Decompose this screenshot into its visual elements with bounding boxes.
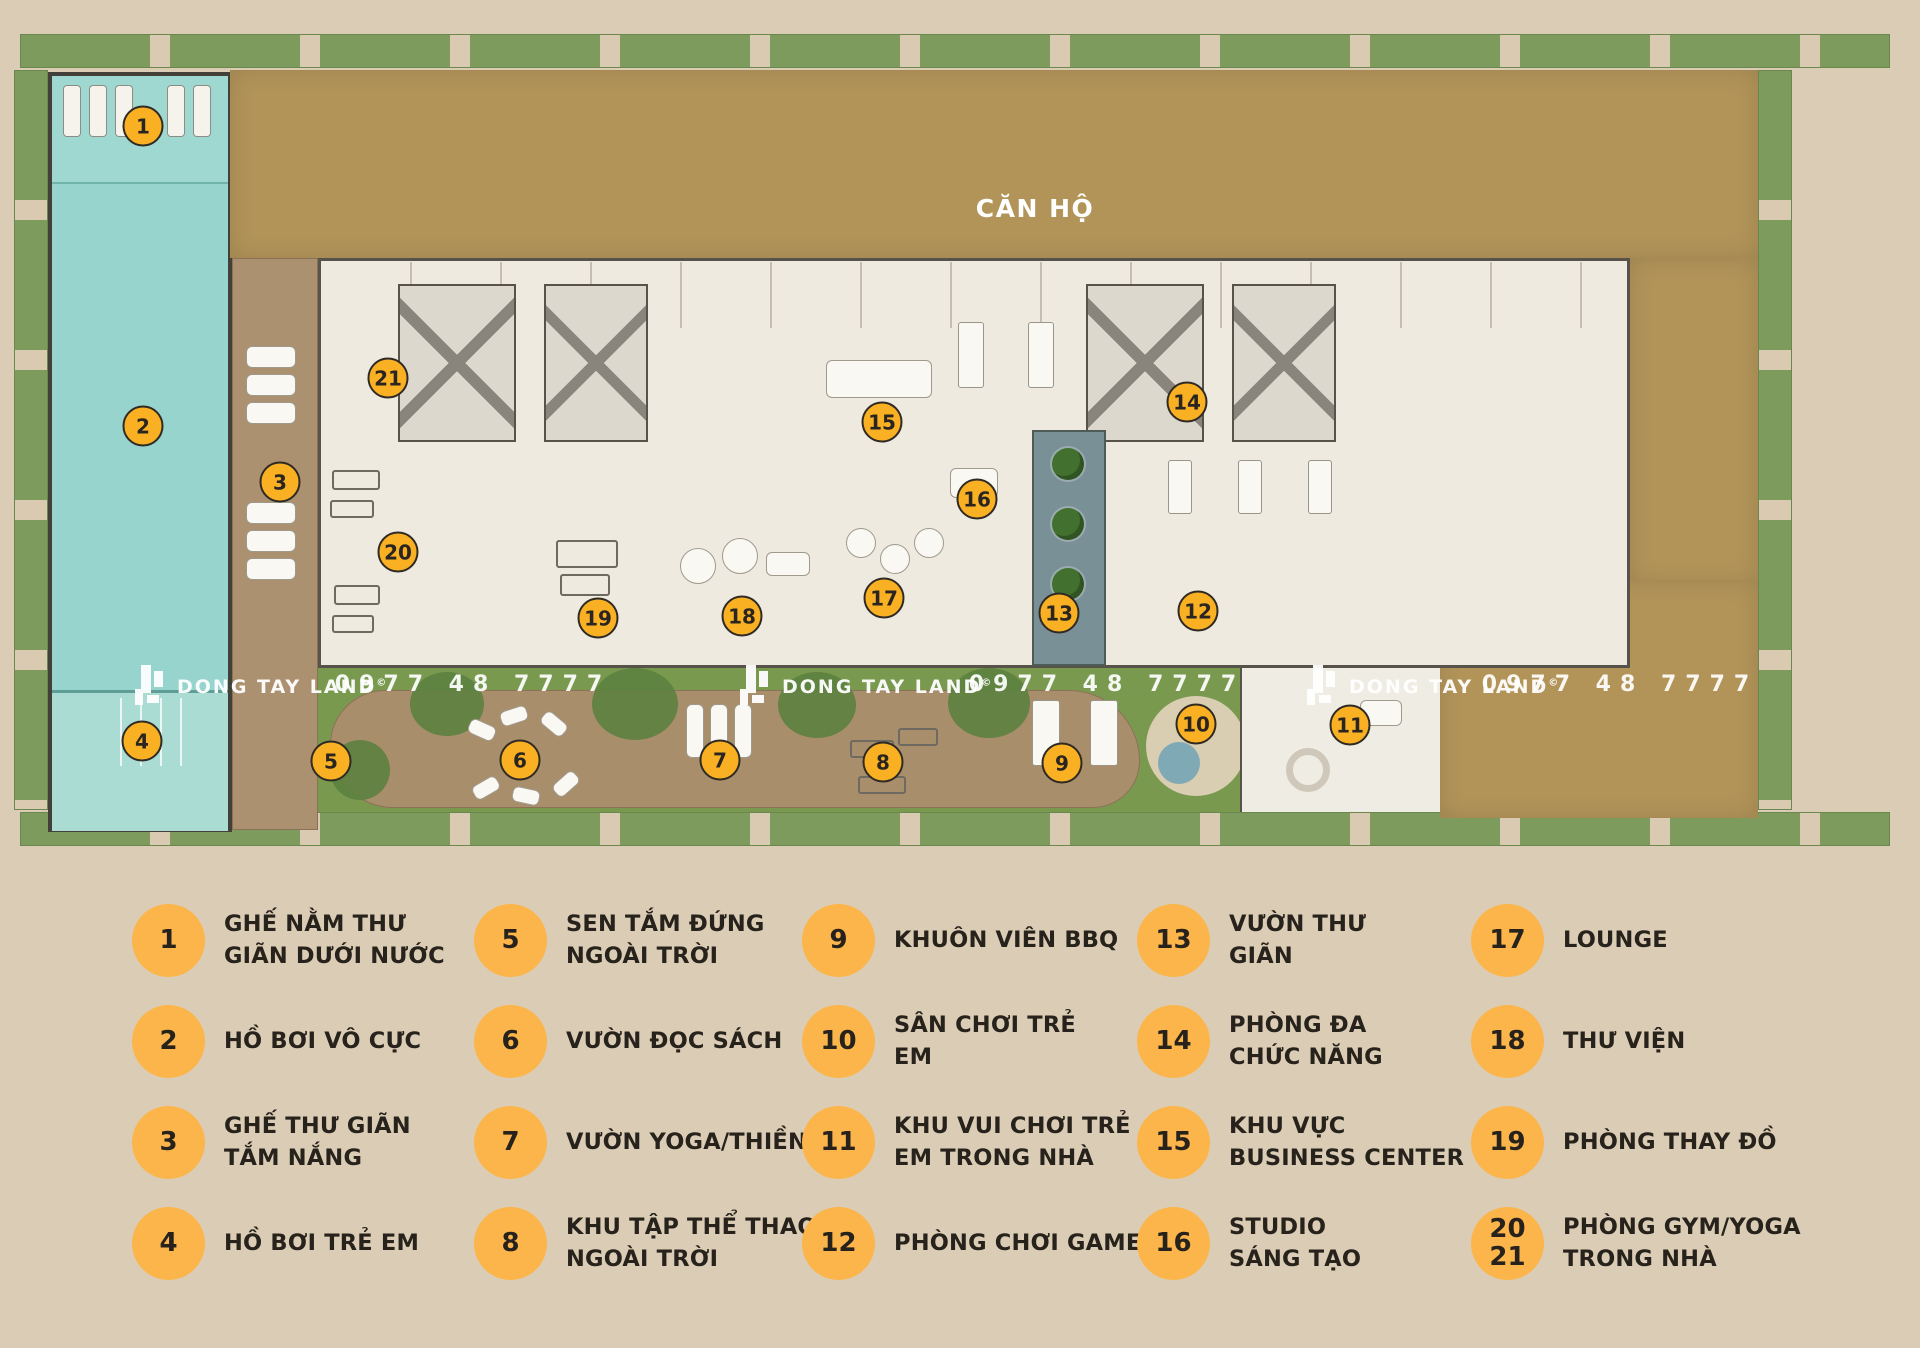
plan-marker: 10 [1176,704,1217,745]
long-table [958,322,984,388]
legend-item-label: GHẾ THƯ GIÃN TẮM NẮNG [224,1111,411,1173]
tree [1052,448,1084,480]
stair-core [544,284,648,442]
apartment-block [230,70,1758,258]
locker-bench [560,574,610,596]
long-table [1168,460,1192,514]
plan-marker: 1 [123,106,164,147]
legend-item-label: KHU TẬP THỂ THAO NGOÀI TRỜI [566,1212,817,1274]
play-slide [1286,748,1330,792]
stair-core [1232,284,1336,442]
legend-item-number: 18 [1471,1005,1544,1078]
legend-item-number: 12 [802,1207,875,1280]
watermark-logo: DONG TAY LAND© [738,663,993,711]
unit-partitions [322,262,1626,328]
legend-item-number: 1 [132,904,205,977]
legend-item-number: 13 [1137,904,1210,977]
legend-item-number: 7 [474,1106,547,1179]
stair-core [398,284,516,442]
legend-item-label: KHU VỰC BUSINESS CENTER [1229,1111,1464,1173]
legend-item-label: LOUNGE [1563,925,1668,956]
legend-item-number: 17 [1471,904,1544,977]
plan-marker: 20 [378,532,419,573]
legend-item: 4HỒ BƠI TRẺ EM [132,1193,532,1294]
pool-lane-line [120,698,122,766]
watermark-phone: 0977 48 7777 [1482,672,1758,697]
library-shelf [766,552,810,576]
plan-marker: 5 [311,741,352,782]
plan-marker: 15 [862,402,903,443]
legend-item-number: 6 [474,1005,547,1078]
legend-item-number: 9 [802,904,875,977]
plan-marker: 13 [1039,593,1080,634]
legend-item-label: PHÒNG GYM/YOGA TRONG NHÀ [1563,1212,1801,1274]
legend-item-label: KHUÔN VIÊN BBQ [894,925,1118,956]
plan-marker: 12 [1178,591,1219,632]
sun-lounger [246,530,296,552]
legend-item-label: HỒ BƠI VÔ CỰC [224,1026,421,1057]
sun-lounger [246,558,296,580]
legend-item-number: 10 [802,1005,875,1078]
pool [48,72,232,832]
sun-lounger [246,502,296,524]
apartment-block-label: CĂN HỘ [900,194,1170,223]
legend-item-label: PHÒNG ĐA CHỨC NĂNG [1229,1010,1383,1072]
gym-equipment [330,500,374,518]
legend-item-label: PHÒNG CHƠI GAME [894,1228,1141,1259]
plan-marker: 18 [722,596,763,637]
legend-column: 1GHẾ NẰM THƯ GIÃN DƯỚI NƯỚC2HỒ BƠI VÔ CỰ… [132,890,532,1294]
playground-pool [1158,742,1200,784]
plan-marker: 7 [700,740,741,781]
legend-item: 3GHẾ THƯ GIÃN TẮM NẮNG [132,1092,532,1193]
legend-item-number: 8 [474,1207,547,1280]
legend-item-label: SÂN CHƠI TRẺ EM [894,1010,1076,1072]
legend-column: 17LOUNGE18THƯ VIỆN19PHÒNG THAY ĐỒ20 21PH… [1471,890,1871,1294]
legend-item: 18THƯ VIỆN [1471,991,1871,1092]
legend-item-number: 14 [1137,1005,1210,1078]
legend-item-label: VƯỜN YOGA/THIỀN [566,1127,807,1158]
plan-marker: 14 [1167,382,1208,423]
legend-item: 20 21PHÒNG GYM/YOGA TRONG NHÀ [1471,1193,1871,1294]
pool-lounger [194,86,210,136]
plan-marker: 9 [1042,743,1083,784]
legend-item-label: VƯỜN THƯ GIÃN [1229,909,1366,971]
plan-marker: 21 [368,358,409,399]
sun-lounger [246,402,296,424]
legend-item-label: SEN TẮM ĐỨNG NGOÀI TRỜI [566,909,765,971]
grass-border-left [14,70,48,810]
plan-marker: 3 [260,462,301,503]
long-table [1028,322,1054,388]
lounge-chair [846,528,876,558]
legend-item-label: STUDIO SÁNG TẠO [1229,1212,1361,1274]
legend-item-number: 2 [132,1005,205,1078]
legend-item-number: 15 [1137,1106,1210,1179]
long-table [1238,460,1262,514]
watermark-phone: 0977 48 7777 [335,672,611,697]
legend-item-number: 19 [1471,1106,1544,1179]
long-table [1308,460,1332,514]
sun-lounger [246,346,296,368]
grass-border-right [1758,70,1792,810]
plan-marker: 16 [957,479,998,520]
gym-equipment [332,470,380,490]
legend-item-number: 11 [802,1106,875,1179]
legend-item: 2HỒ BƠI VÔ CỰC [132,991,532,1092]
gym-equipment [334,585,380,605]
legend-item-label: PHÒNG THAY ĐỒ [1563,1127,1777,1158]
sun-lounger [246,374,296,396]
legend-item: 17LOUNGE [1471,890,1871,991]
grass-border-top [20,34,1890,68]
brand-building-icon [1305,663,1339,711]
lounge-chair [880,544,910,574]
library-sofa [680,548,716,584]
legend-item-label: THƯ VIỆN [1563,1026,1685,1057]
pool-lounger [90,86,106,136]
legend-item-number: 5 [474,904,547,977]
plan-marker: 2 [123,406,164,447]
meeting-table [826,360,932,398]
legend-item-number: 4 [132,1207,205,1280]
site-plan: CĂN HỘ [0,0,1920,860]
legend-item-number: 3 [132,1106,205,1179]
gym-equipment [332,615,374,633]
plan-marker: 11 [1330,705,1371,746]
legend-item-number: 16 [1137,1207,1210,1280]
legend-item-label: VƯỜN ĐỌC SÁCH [566,1026,782,1057]
legend-item: 19PHÒNG THAY ĐỒ [1471,1092,1871,1193]
plan-marker: 4 [122,721,163,762]
legend-item: 1GHẾ NẰM THƯ GIÃN DƯỚI NƯỚC [132,890,532,991]
locker-bench [556,540,618,568]
plan-marker: 19 [578,598,619,639]
plan-marker: 6 [500,740,541,781]
bbq-table [1090,700,1118,766]
lounge-chair [914,528,944,558]
legend-item-label: HỒ BƠI TRẺ EM [224,1228,419,1259]
brand-building-icon [133,663,167,711]
pool-lounger [64,86,80,136]
outdoor-gym-equipment [898,728,938,746]
legend-item-number: 20 21 [1471,1207,1544,1280]
library-sofa [722,538,758,574]
plan-marker: 17 [864,578,905,619]
apartment-block-right-wing [1630,258,1758,584]
watermark-phone: 0977 48 7777 [969,672,1245,697]
brand-building-icon [738,663,772,711]
tree [1052,508,1084,540]
legend-item-label: GHẾ NẰM THƯ GIÃN DƯỚI NƯỚC [224,909,445,971]
legend-item-label: KHU VUI CHƠI TRẺ EM TRONG NHÀ [894,1111,1131,1173]
watermark-brand-text: DONG TAY LAND© [782,676,993,698]
pool-lounger [168,86,184,136]
plan-marker: 8 [863,742,904,783]
